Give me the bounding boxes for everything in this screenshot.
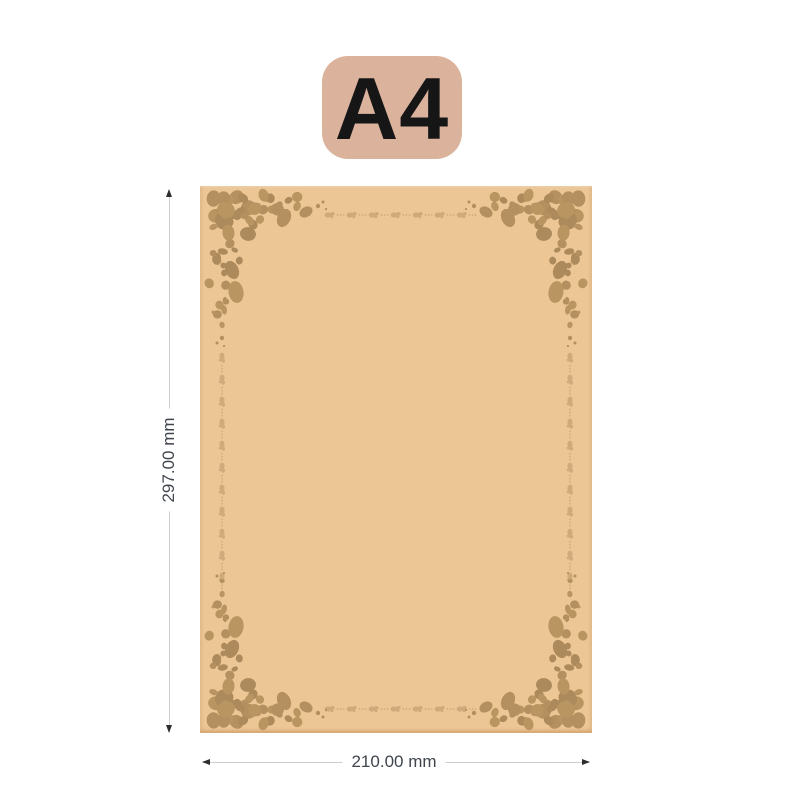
height-dimension-label: 297.00 mm [158,408,180,511]
arrow-down-icon [166,725,172,733]
arrow-right-icon [582,759,590,765]
arrow-up-icon [166,189,172,197]
size-badge-label: A4 [335,63,450,153]
product-dimension-diagram: { "format_badge": { "label": "A4", "bg_c… [0,0,800,800]
floral-border-ornament [200,186,592,733]
size-badge: A4 [322,56,462,159]
width-dimension-label: 210.00 mm [342,751,445,773]
paper-preview [200,186,592,733]
arrow-left-icon [202,759,210,765]
